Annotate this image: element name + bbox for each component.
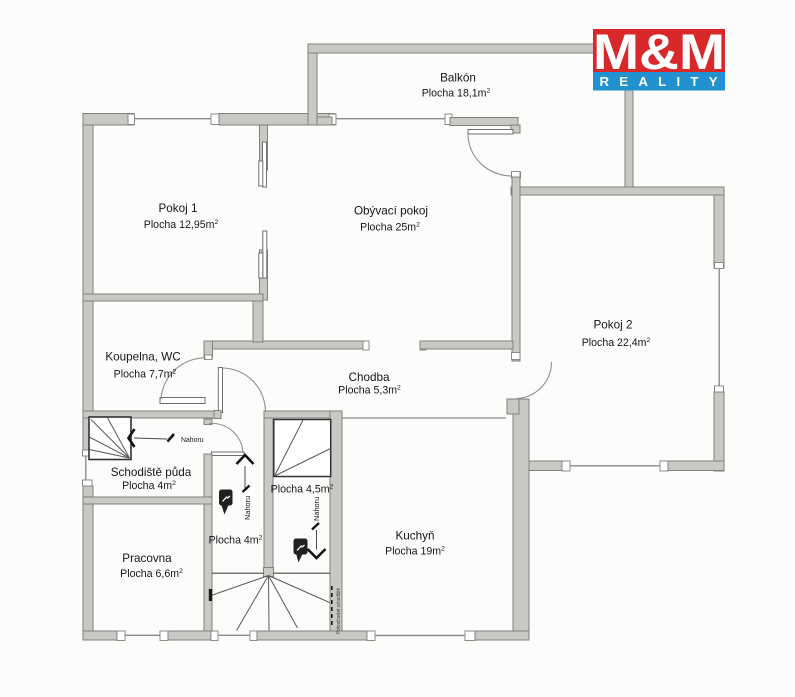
svg-text:Nahoru: Nahoru bbox=[243, 496, 252, 520]
svg-text:Plocha 19m2: Plocha 19m2 bbox=[385, 546, 445, 558]
svg-text:Kuchyň: Kuchyň bbox=[396, 530, 435, 543]
svg-text:Plocha 25m2: Plocha 25m2 bbox=[360, 222, 420, 234]
svg-text:Plocha 5,3m2: Plocha 5,3m2 bbox=[338, 385, 401, 397]
svg-text:Balkón: Balkón bbox=[440, 72, 476, 85]
svg-text:Plocha 12,95m2: Plocha 12,95m2 bbox=[144, 219, 219, 231]
svg-text:Pokoj 1: Pokoj 1 bbox=[159, 202, 198, 215]
svg-text:M&M: M&M bbox=[593, 24, 725, 80]
svg-text:Obývací pokoj: Obývací pokoj bbox=[354, 205, 428, 218]
svg-text:Nahoru: Nahoru bbox=[181, 437, 204, 444]
svg-text:Nahoru: Nahoru bbox=[312, 497, 321, 521]
svg-text:Pokračování schodiště: Pokračování schodiště bbox=[336, 588, 342, 634]
svg-text:Plocha 6,6m2: Plocha 6,6m2 bbox=[120, 568, 183, 580]
svg-text:Plocha 22,4m2: Plocha 22,4m2 bbox=[582, 337, 651, 349]
svg-text:Chodba: Chodba bbox=[349, 371, 390, 384]
svg-text:Schodiště půda: Schodiště půda bbox=[111, 466, 192, 479]
svg-text:Plocha 7,7m2: Plocha 7,7m2 bbox=[114, 369, 177, 381]
svg-text:Plocha 4,5m2: Plocha 4,5m2 bbox=[271, 484, 334, 496]
svg-text:Koupelna, WC: Koupelna, WC bbox=[105, 351, 180, 364]
svg-text:Plocha 4m2: Plocha 4m2 bbox=[122, 480, 176, 492]
svg-text:Plocha 4m2: Plocha 4m2 bbox=[209, 535, 263, 547]
svg-text:Plocha 18,1m2: Plocha 18,1m2 bbox=[422, 88, 491, 100]
svg-text:Pokoj 2: Pokoj 2 bbox=[594, 319, 633, 332]
svg-text:Pracovna: Pracovna bbox=[122, 552, 172, 565]
